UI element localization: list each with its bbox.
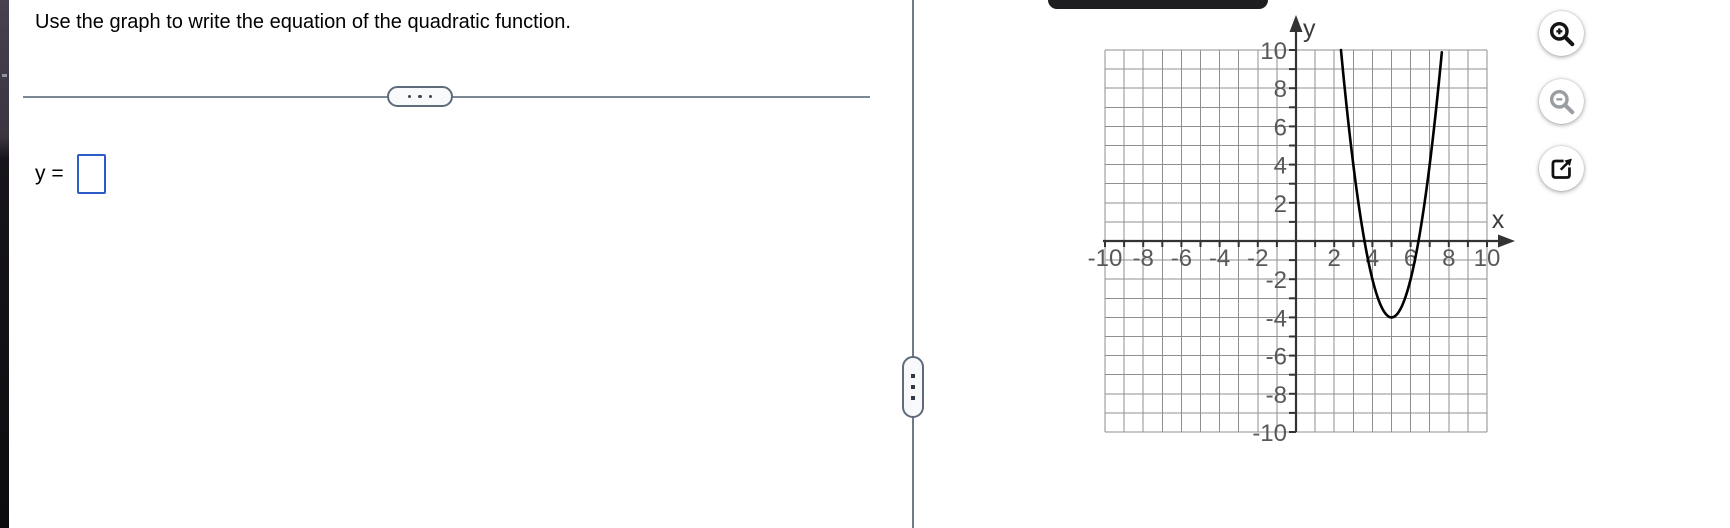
ellipsis-dot-icon xyxy=(429,95,433,99)
graph-canvas: -10-8-6-4-2246810108642-2-4-6-8-10xy xyxy=(1040,0,1540,460)
answer-prefix-label: y = xyxy=(35,162,64,186)
svg-text:10: 10 xyxy=(1474,245,1501,272)
open-in-new-window-icon xyxy=(1546,153,1578,185)
background-window-dash xyxy=(2,74,7,77)
svg-text:-8: -8 xyxy=(1133,245,1154,272)
background-window-strip xyxy=(0,0,9,528)
svg-text:2: 2 xyxy=(1274,191,1287,218)
svg-text:-10: -10 xyxy=(1088,245,1123,272)
svg-text:10: 10 xyxy=(1260,38,1287,65)
svg-text:6: 6 xyxy=(1274,114,1287,141)
answer-input[interactable] xyxy=(77,154,106,194)
svg-text:-4: -4 xyxy=(1209,245,1230,272)
svg-text:8: 8 xyxy=(1442,245,1455,272)
ellipsis-dot-icon xyxy=(418,95,422,99)
svg-text:-4: -4 xyxy=(1266,305,1287,332)
svg-text:x: x xyxy=(1492,206,1505,234)
magnifier-minus-icon xyxy=(1546,86,1578,118)
panel-resize-handle[interactable] xyxy=(902,356,924,418)
svg-text:-6: -6 xyxy=(1266,344,1287,371)
question-divider-ellipsis-button[interactable] xyxy=(387,86,453,107)
svg-text:-2: -2 xyxy=(1266,267,1287,294)
panel-splitter-line xyxy=(912,0,914,528)
svg-text:8: 8 xyxy=(1274,76,1287,103)
question-text: Use the graph to write the equation of t… xyxy=(35,8,571,36)
zoom-out-button[interactable] xyxy=(1539,79,1584,124)
ellipsis-dot-icon xyxy=(408,95,412,99)
quadratic-graph-figure: -10-8-6-4-2246810108642-2-4-6-8-10xy xyxy=(1040,0,1540,460)
svg-text:2: 2 xyxy=(1328,245,1341,272)
open-in-new-window-button[interactable] xyxy=(1539,146,1584,191)
zoom-in-button[interactable] xyxy=(1539,11,1584,56)
svg-text:-6: -6 xyxy=(1171,245,1192,272)
grip-dot-icon xyxy=(911,374,916,379)
grip-dot-icon xyxy=(911,385,916,390)
svg-text:4: 4 xyxy=(1274,153,1287,180)
svg-text:y: y xyxy=(1303,15,1316,43)
svg-text:-10: -10 xyxy=(1252,420,1287,447)
grip-dot-icon xyxy=(911,396,916,401)
magnifier-plus-icon xyxy=(1546,18,1578,50)
svg-text:-8: -8 xyxy=(1266,382,1287,409)
